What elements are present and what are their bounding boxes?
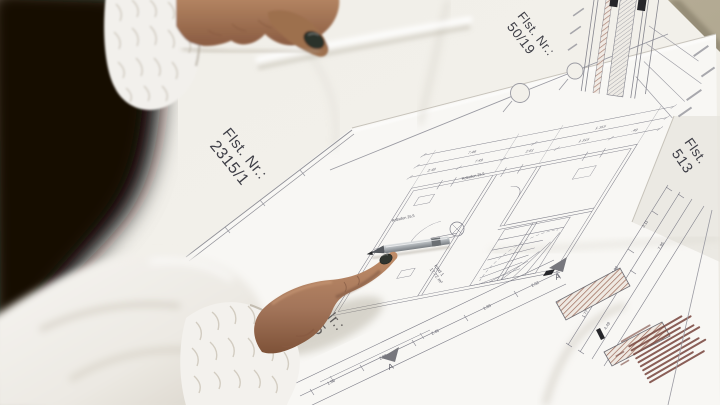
- pencil-grip: [431, 237, 441, 246]
- scene: Flst. Nr.: 50/19 Flst. Nr.: 2315/1 Flst.…: [0, 0, 720, 405]
- survey-point-circle: [567, 63, 583, 79]
- survey-point-circle: [511, 84, 530, 103]
- photo-architect-blueprint: Flst. Nr.: 50/19 Flst. Nr.: 2315/1 Flst.…: [0, 0, 720, 405]
